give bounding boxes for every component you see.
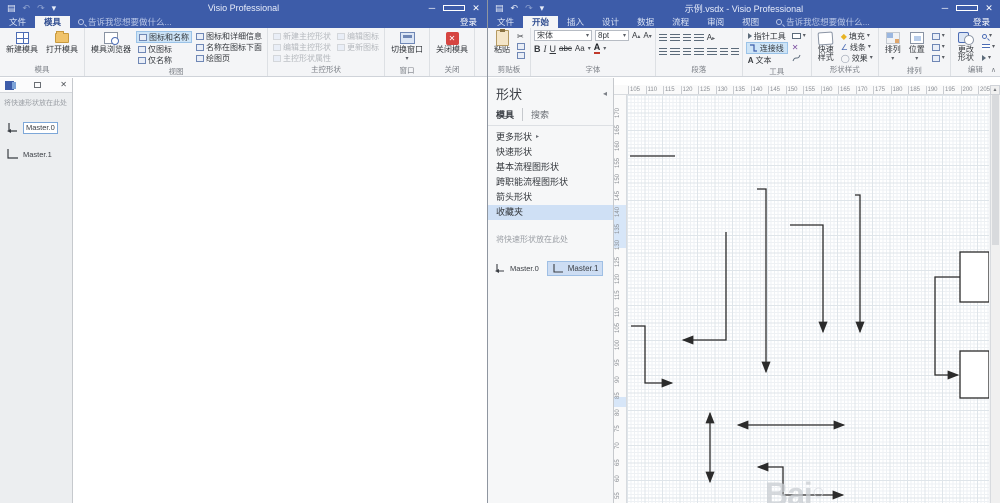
group-font: 宋体▾ 8pt▾ A▴ A▾ B I U abc Aa▾ A▾ 字体 [531,28,656,76]
stencil-explorer-icon [104,32,118,44]
vruler-label: 95 [615,360,621,367]
window-drawing: ▤ ↶ ↷ ▾ 示例.vsdx - Visio Professional ─ ✕… [488,0,1000,503]
elbow-arrow-right[interactable] [631,326,672,383]
copy-button[interactable] [515,42,527,50]
quick-shapes-hint: 将快速形状放在此处 [488,220,613,245]
tab-stencil[interactable]: 模具 [35,16,70,28]
pointer-tool-button[interactable]: 指针工具 [746,31,788,41]
group-arrange: 排列 ▾ 位置 ▾ ▾ ▾ ▾ 排列 [879,28,951,76]
maximize-button[interactable] [443,3,465,14]
underline-button[interactable]: U [550,44,557,54]
fill-icon: ◆ [841,32,847,41]
group-label-view: 视图 [88,65,264,78]
left-window-controls: ─ ✕ [421,3,487,14]
group-label-arrange: 排列 [882,64,947,77]
connector-icon [749,44,758,52]
redo-icon[interactable]: ↷ [525,3,533,14]
quick-shapes-hint: 将快速形状放在此处 [0,93,72,108]
group-label-tools: 工具 [746,65,808,78]
master-item-0[interactable]: Master.0 [494,263,539,274]
connection-point-button[interactable]: ✕ [790,42,808,52]
maximize-button[interactable] [956,3,978,14]
drawing-shapes-layer [627,95,989,503]
drawing-page-toggle[interactable]: 绘图页 [194,53,264,63]
find-button[interactable]: ▾ [980,31,997,41]
bring-forward-icon [932,33,940,40]
group-window: 切换窗口 ▾ 窗口 [385,28,430,76]
master-0-label: Master.0 [510,264,539,273]
stencil-edit-pane: ✕ 将快速形状放在此处 Master.0 Master.1 [0,78,73,503]
icon-only-icon [138,46,146,53]
connection-point-icon: ✕ [792,43,799,52]
icon-details-toggle[interactable]: 图标和详细信息 [194,31,264,41]
vruler-label: 155 [615,158,621,168]
hruler-label: 110 [646,86,658,94]
name-only-icon [138,57,146,64]
vruler-label: 170 [615,108,621,118]
elbow-shape-icon [552,263,564,274]
tab-insert[interactable]: 插入 [558,16,593,28]
font-color-button[interactable]: A [594,43,601,54]
hruler-label: 150 [786,86,798,94]
watermark: Bai [765,476,824,503]
paste-icon [496,30,509,46]
align-top-icon[interactable] [659,34,667,42]
group-shapes-icon [932,55,940,62]
master-properties-button[interactable]: 主控形状属性 [271,53,333,63]
vruler-label: 135 [615,224,621,234]
vertical-arrow-down[interactable] [855,195,860,332]
hruler-label: 120 [681,86,693,94]
stencil-item-more-shapes[interactable]: 更多形状▸ [488,130,613,145]
rectangle-icon [792,33,801,39]
maximize-icon [443,5,465,11]
find-icon [982,34,987,39]
shapes-panel-masters: Master.0 Master.1 [494,261,613,276]
effects-button[interactable]: ◯效果▾ [839,53,875,63]
icon-and-name-toggle[interactable]: 图标和名称 [136,31,192,43]
visio-file-icon [5,81,14,90]
qat-more-icon[interactable]: ▾ [52,3,57,14]
right-quick-access-toolbar: ▤ ↶ ↷ ▾ [488,3,618,14]
change-shape-button[interactable]: 更改形状 [954,30,978,63]
vruler-label: 125 [615,257,621,267]
font-size-combo[interactable]: 8pt▾ [595,30,629,41]
vruler-label: 70 [615,442,621,449]
drawing-page[interactable]: Bai [627,95,989,503]
stencil-pane-titlebar: ✕ [0,78,72,93]
bold-button[interactable]: B [534,44,541,54]
master-item-1-selected[interactable]: Master.1 [547,261,604,276]
vruler-label: 85 [615,393,621,400]
hruler-label: 115 [663,86,675,94]
cut-icon: ✂ [517,32,524,41]
vruler-label: 100 [615,340,621,350]
tell-me-search[interactable]: 告诉我您想要做什么... [768,16,878,28]
elbow-shape-icon [6,148,19,160]
elbow-arrow-left[interactable] [683,232,726,340]
hruler-label: 175 [873,86,885,94]
vruler-label: 80 [615,409,621,416]
vruler-label: 65 [615,459,621,466]
align-right-icon[interactable] [683,48,691,56]
hruler-label: 130 [716,86,728,94]
save-icon[interactable]: ▤ [495,3,504,14]
switch-window-dropdown-icon: ▾ [405,55,408,63]
icon-only-toggle[interactable]: 仅图标 [136,44,192,54]
new-stencil-button[interactable]: 新建模具 [3,30,41,55]
change-case-button[interactable]: Aa [575,44,585,53]
position-icon [910,32,924,44]
vruler-label: 60 [615,475,621,482]
left-titlebar: ▤ ↶ ↷ ▾ Visio Professional ─ ✕ [0,0,487,16]
undo-icon[interactable]: ↶ [23,3,31,14]
left-quick-access-toolbar: ▤ ↶ ↷ ▾ [0,3,130,14]
hruler-label: 160 [821,86,833,94]
minimize-button[interactable]: ─ [421,3,443,14]
master-item-1[interactable]: Master.1 [6,148,68,160]
search-hint-text: 告诉我您想要做什么... [786,16,870,28]
format-painter-button[interactable] [515,51,527,59]
tab-stencils[interactable]: 模具 [496,108,522,121]
text-tool-button[interactable]: A文本 [746,55,788,65]
name-under-icon-icon [196,44,204,51]
position-button[interactable]: 位置 ▾ [906,30,928,64]
group-label-window: 窗口 [388,64,426,77]
vertical-ruler: 1701651601551501451401351301251201151101… [614,95,627,503]
tell-me-search[interactable]: 告诉我您想要做什么... [70,16,180,28]
name-under-icon-toggle[interactable]: 名称在图标下面 [194,42,264,52]
drawing-canvas-area: 1051101151201251301351401451501551601651… [614,85,1000,503]
close-stencil-icon: ✕ [446,32,459,45]
vruler-label: 140 [615,207,621,217]
box-1[interactable] [960,252,989,302]
left-ribbon: 新建模具 打开模具 模具 模具浏览器 图标和名称 [0,28,487,77]
hruler-label: 140 [751,86,763,94]
maximize-icon [956,5,978,11]
layers-button[interactable]: ▾ [980,42,997,52]
align-bottom-icon[interactable] [683,34,691,42]
vruler-label: 55 [615,492,621,499]
tab-file[interactable]: 文件 [488,16,523,28]
send-backward-icon [932,44,940,51]
layers-icon [982,44,990,50]
tab-file[interactable]: 文件 [0,16,35,28]
tab-search[interactable]: 搜索 [522,108,557,121]
align-button[interactable]: 排列 ▾ [882,30,904,64]
copy-icon [517,43,525,50]
change-shape-icon [958,32,974,45]
hruler-label: 125 [698,86,710,94]
stencil-item-arrow-shapes[interactable]: 箭头形状 [488,190,613,205]
sign-in-link[interactable]: 登录 [973,16,1000,28]
line-button[interactable]: ∠线条▾ [839,42,875,52]
close-stencil-button[interactable]: ✕ 关闭模具 [433,30,471,55]
decrease-indent-icon[interactable] [720,48,728,56]
shapes-panel: 形状 ◂ 模具 搜索 更多形状▸ 快速形状 基本流程图形状 跨职能流程图形状 箭… [488,78,614,503]
vruler-label: 120 [615,273,621,283]
hruler-label: 135 [733,86,745,94]
group-clipboard: 粘贴 ✂ 剪贴板 [488,28,531,76]
group-close: ✕ 关闭模具 关闭 [430,28,475,76]
undo-icon[interactable]: ↶ [511,3,519,14]
stencil-item-quick-shapes[interactable]: 快速形状 [488,145,613,160]
line-icon: ∠ [841,43,848,52]
new-stencil-icon [16,32,29,44]
group-master-shape: 新建主控形状 编辑主控形状 主控形状属性 编辑图标 更新图标 主控形状 [268,28,385,76]
select-button[interactable]: ▾ [980,53,997,63]
hruler-label: 170 [856,86,868,94]
window-stencil-editor: ▤ ↶ ↷ ▾ Visio Professional ─ ✕ 文件 模具 告诉我… [0,0,488,503]
increase-indent-icon[interactable] [731,48,739,56]
screen: ▤ ↶ ↷ ▾ Visio Professional ─ ✕ 文件 模具 告诉我… [0,0,1000,503]
group-label-paragraph: 段落 [659,63,739,76]
group-label-stencil: 模具 [3,63,81,76]
pointer-tool-icon [748,33,752,39]
update-icon-button[interactable]: 更新图标 [335,42,381,52]
drawing-page-icon [196,55,204,62]
qat-more-icon[interactable]: ▾ [540,3,545,14]
group-shape-styles: 快速样式 ◆填充▾ ∠线条▾ ◯效果▾ 形状样式 [812,28,879,76]
text-direction-icon[interactable]: A▸ [707,33,715,42]
vruler-label: 115 [615,290,621,300]
right-window-body: 形状 ◂ 模具 搜索 更多形状▸ 快速形状 基本流程图形状 跨职能流程图形状 箭… [488,78,1000,503]
text-tool-icon: A [748,56,754,65]
right-window-controls: ─ ✕ [934,3,1000,14]
stencil-item-basic-flowchart[interactable]: 基本流程图形状 [488,160,613,175]
hruler-label: 105 [628,86,640,94]
horizontal-ruler: 1051101151201251301351401451501551601651… [614,85,1000,95]
close-button[interactable]: ✕ [465,3,487,14]
vruler-label: 165 [615,125,621,135]
cut-button[interactable]: ✂ [515,31,527,41]
hruler-label: 190 [926,86,938,94]
line-spacing-icon[interactable] [707,48,717,56]
edit-icon-icon [337,33,345,40]
group-stencil: 新建模具 打开模具 模具 [0,28,85,76]
vruler-label: 145 [615,191,621,201]
group-paragraph: A▸ 段落 [656,28,743,76]
font-name-combo[interactable]: 宋体▾ [534,30,592,41]
quick-styles-button[interactable]: 快速样式 [815,30,837,63]
elbow-arrow-down-2[interactable] [790,225,823,332]
icon-details-icon [196,33,204,40]
group-label-close: 关闭 [433,63,471,76]
new-master-button[interactable]: 新建主控形状 [271,31,333,41]
tab-design[interactable]: 设计 [593,16,628,28]
master-1-label: Master.1 [568,264,599,273]
save-icon[interactable]: ▤ [7,3,16,14]
right-titlebar: ▤ ↶ ↷ ▾ 示例.vsdx - Visio Professional ─ ✕ [488,0,1000,16]
master-1-label: Master.1 [23,150,52,159]
edit-master-icon [273,44,281,51]
group-tools: 指针工具 连接线 A文本 ▾ ✕ 工具 [743,28,812,76]
freeform-tool-button[interactable] [790,53,808,62]
format-painter-icon [517,52,525,59]
scrollbar-thumb[interactable] [992,95,999,245]
hruler-label: 165 [838,86,850,94]
hruler-label: 180 [891,86,903,94]
vruler-label: 90 [615,376,621,383]
search-icon [78,19,84,25]
grow-font-button[interactable]: A▴ [632,31,640,40]
switch-window-icon [400,32,415,44]
align-middle-icon[interactable] [670,34,680,42]
rectangle-tool-button[interactable]: ▾ [790,31,808,41]
icon-and-name-icon [139,34,147,41]
group-label-font: 字体 [534,63,652,76]
group-label-clipboard: 剪贴板 [491,63,527,76]
tab-review[interactable]: 审阅 [698,16,733,28]
hruler-label: 205 [978,86,990,94]
vruler-label: 110 [615,307,621,317]
vertical-scrollbar[interactable] [990,95,1000,503]
collapse-panel-icon[interactable]: ◂ [603,89,607,98]
strikethrough-button[interactable]: abc [559,44,572,53]
elbow-shape-icon [6,122,19,134]
close-icon[interactable]: ✕ [60,81,67,89]
name-only-toggle[interactable]: 仅名称 [136,55,192,65]
connector-to-box[interactable] [935,277,960,375]
align-left-icon[interactable] [659,48,667,56]
tab-process[interactable]: 流程 [663,16,698,28]
group-shapes-button[interactable]: ▾ [930,53,947,63]
search-icon [776,19,782,25]
new-master-icon [273,33,281,40]
box-2[interactable] [960,351,989,398]
shapes-panel-title: 形状 [496,84,522,103]
shrink-font-button[interactable]: A▾ [643,31,651,40]
collapse-ribbon-icon[interactable]: ∧ [991,66,996,74]
send-backward-button[interactable]: ▾ [930,42,947,52]
tab-data[interactable]: 数据 [628,16,663,28]
tab-view[interactable]: 视图 [733,16,768,28]
update-icon-icon [337,44,345,51]
redo-icon[interactable]: ↷ [37,3,45,14]
left-ribbon-tabs: 文件 模具 告诉我您想要做什么... 登录 [0,16,487,28]
left-window-body: ✕ 将快速形状放在此处 Master.0 Master.1 [0,78,487,503]
effects-icon: ◯ [841,54,850,63]
hruler-label: 145 [768,86,780,94]
master-properties-icon [273,55,281,62]
restore-icon[interactable] [34,82,41,88]
right-ribbon: 粘贴 ✂ 剪贴板 宋体▾ 8pt▾ A▴ A▾ [488,28,1000,77]
close-button[interactable]: ✕ [978,3,1000,14]
tab-home[interactable]: 开始 [523,16,558,28]
paste-button[interactable]: 粘贴 [491,30,513,55]
vruler-label: 160 [615,141,621,151]
scroll-up-button[interactable]: ▲ [990,85,1000,95]
edit-icon-button[interactable]: 编辑图标 [335,31,381,41]
align-center-icon[interactable] [670,48,680,56]
edit-master-button[interactable]: 编辑主控形状 [271,42,333,52]
hruler-label: 155 [803,86,815,94]
right-ribbon-tabs: 文件 开始 插入 设计 数据 流程 审阅 视图 告诉我您想要做什么... 登录 [488,16,1000,28]
connector-tool-button[interactable]: 连接线 [746,42,788,54]
sign-in-link[interactable]: 登录 [460,16,487,28]
minimize-button[interactable]: ─ [934,3,956,14]
stencil-explorer-button[interactable]: 模具浏览器 [88,30,134,55]
vruler-label: 75 [615,426,621,433]
elbow-arrow-down-1[interactable] [757,189,766,372]
group-label-master-shape: 主控形状 [271,63,381,76]
hruler-label: 185 [908,86,920,94]
align-icon [886,32,900,44]
italic-button[interactable]: I [544,44,547,54]
select-icon [982,55,986,61]
open-stencil-button[interactable]: 打开模具 [43,30,81,55]
vruler-label: 150 [615,174,621,184]
justify-icon[interactable] [694,48,704,56]
bullets-icon[interactable] [694,34,704,42]
vruler-label: 105 [615,323,621,333]
open-stencil-icon [55,33,69,43]
search-hint-text: 告诉我您想要做什么... [88,16,172,28]
hruler-label: 195 [943,86,955,94]
stencil-item-favorites[interactable]: 收藏夹 [488,205,613,220]
group-view: 模具浏览器 图标和名称 仅图标 仅名称 图标和详细信息 名称在图标下面 绘图页 … [85,28,268,76]
elbow-shape-icon [494,263,506,274]
shapes-panel-tabs: 模具 搜索 [488,105,613,126]
hruler-label: 200 [961,86,973,94]
bring-forward-button[interactable]: ▾ [930,31,947,41]
master-0-label[interactable]: Master.0 [23,122,58,134]
switch-window-button[interactable]: 切换窗口 ▾ [388,30,426,64]
group-label-shape-styles: 形状样式 [815,63,875,76]
master-item-0[interactable]: Master.0 [6,122,68,134]
quick-styles-icon [818,31,834,45]
vruler-label: 130 [615,240,621,250]
freeform-icon [792,54,801,62]
stencil-item-crossfunctional[interactable]: 跨职能流程图形状 [488,175,613,190]
fill-button[interactable]: ◆填充▾ [839,31,875,41]
